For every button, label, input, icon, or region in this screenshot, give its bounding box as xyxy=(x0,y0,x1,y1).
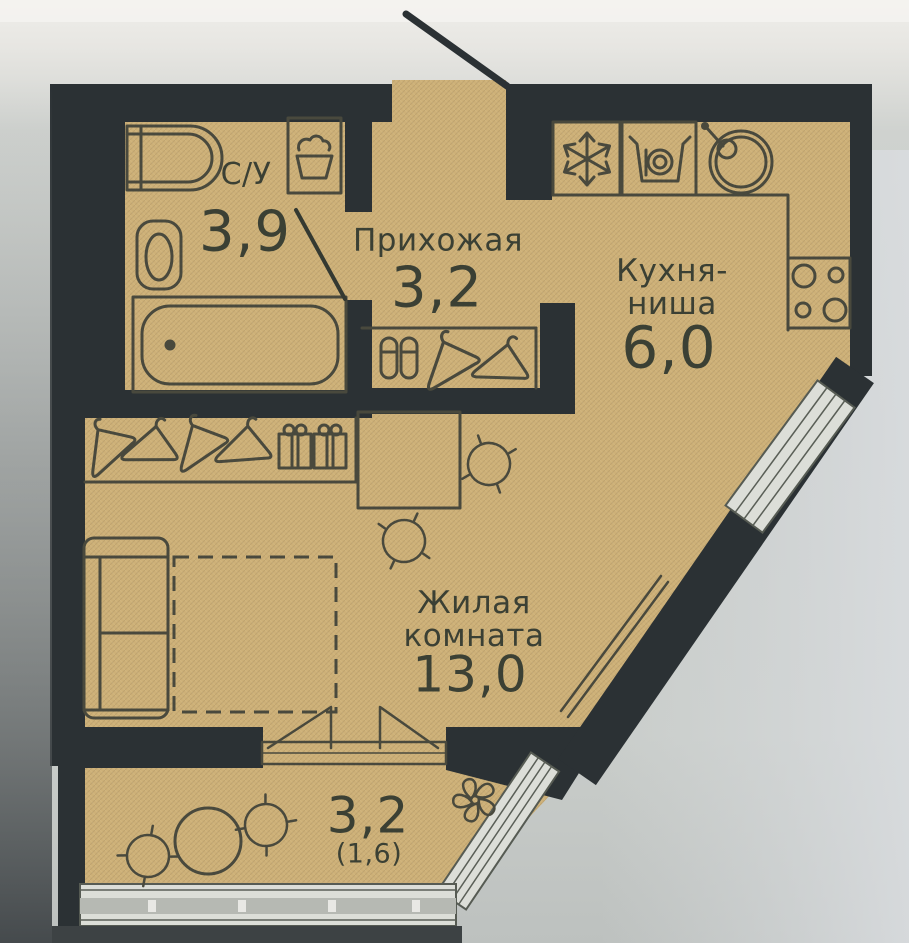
bathroom-name-label: С/У xyxy=(221,159,272,191)
kitchen-name-label: Кухня- ниша xyxy=(616,255,728,321)
hallway-area-label: 3,2 xyxy=(391,258,483,317)
living-name-label: Жилая комната xyxy=(404,587,545,653)
balcony-area-reduced-label: (1,6) xyxy=(336,841,403,870)
hallway-name-label: Прихожая xyxy=(353,225,523,258)
bathroom-area-label: 3,9 xyxy=(199,202,291,261)
kitchen-area-label: 6,0 xyxy=(621,317,716,378)
floorplan-photo: С/У 3,9 Прихожая 3,2 Кухня- ниша 6,0 Жил… xyxy=(0,0,909,943)
living-area-label: 13,0 xyxy=(412,649,527,702)
balcony-area-label: 3,2 xyxy=(327,790,410,843)
photo-top-band xyxy=(0,0,909,22)
floorplan-svg xyxy=(0,0,909,943)
photo-left-shadow xyxy=(0,80,52,943)
